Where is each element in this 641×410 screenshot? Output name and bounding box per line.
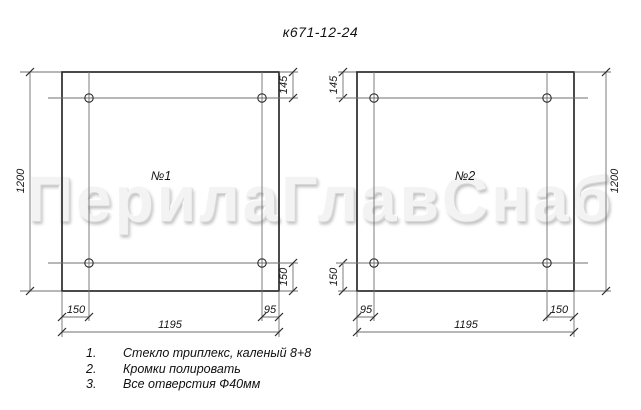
dim-bottom-hole-label: 150 (328, 267, 340, 286)
dim-height-label: 1200 (609, 168, 621, 193)
dim-bottom-hole-label: 150 (278, 267, 290, 286)
panel-2: 145 150 1200 (328, 68, 621, 337)
note-text: Стекло триплекс, каленый 8+8 (123, 346, 311, 362)
dim-top-hole-label: 145 (278, 75, 290, 94)
drawing-page: ПерилаГлавСнаб к671-12-24 1200 (0, 0, 641, 410)
dim-right-hole-label: 95 (264, 304, 277, 316)
note-text: Кромки полировать (123, 362, 241, 378)
dim-height-label: 1200 (15, 168, 27, 193)
note-item: 2. Кромки полировать (86, 362, 311, 378)
note-text: Все отверстия Ф40мм (123, 377, 260, 393)
panel-1-label: №1 (151, 169, 172, 183)
notes-list: 1. Стекло триплекс, каленый 8+8 2. Кромк… (86, 346, 311, 393)
dim-width-label: 1195 (158, 319, 183, 331)
panel-2-label: №2 (455, 169, 476, 183)
note-number: 1. (86, 346, 123, 362)
panel-1: 1200 145 150 (15, 68, 298, 337)
note-item: 3. Все отверстия Ф40мм (86, 377, 311, 393)
dim-left-hole-label: 150 (67, 304, 86, 316)
dim-left-hole-label: 95 (360, 304, 373, 316)
dim-width-label: 1195 (454, 319, 479, 331)
note-number: 2. (86, 362, 123, 378)
dim-top-hole-label: 145 (328, 75, 340, 94)
note-item: 1. Стекло триплекс, каленый 8+8 (86, 346, 311, 362)
note-number: 3. (86, 377, 123, 393)
dim-right-hole-label: 150 (550, 304, 569, 316)
